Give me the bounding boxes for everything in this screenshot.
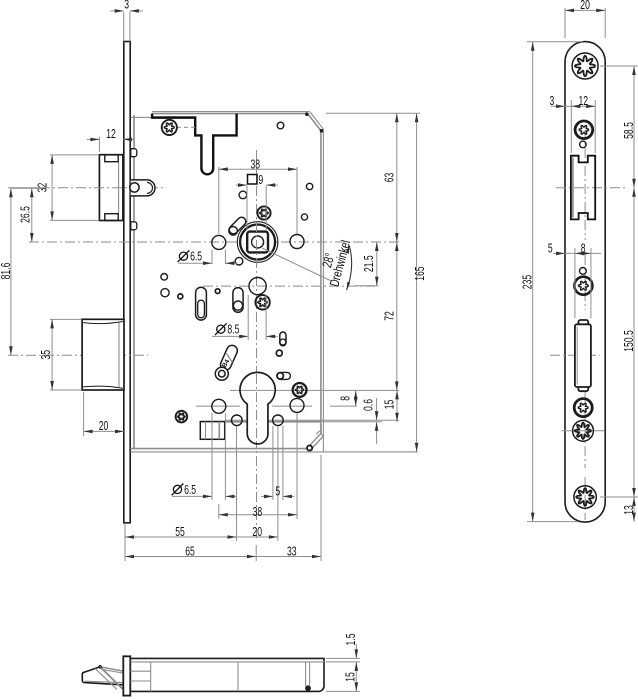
svg-text:26.5: 26.5 <box>17 206 32 223</box>
svg-text:21.5: 21.5 <box>361 255 376 272</box>
svg-text:72: 72 <box>381 311 396 321</box>
svg-text:35: 35 <box>38 350 53 360</box>
svg-text:58.5: 58.5 <box>621 122 636 139</box>
svg-text:20: 20 <box>580 0 590 12</box>
svg-text:15: 15 <box>343 672 358 682</box>
svg-text:6.5: 6.5 <box>190 249 202 264</box>
svg-text:9: 9 <box>258 172 263 187</box>
svg-text:3: 3 <box>550 93 555 108</box>
svg-text:32: 32 <box>35 183 50 193</box>
svg-text:12: 12 <box>579 93 589 108</box>
svg-text:38: 38 <box>251 156 261 171</box>
svg-text:8.5: 8.5 <box>227 322 239 337</box>
svg-text:20: 20 <box>99 418 109 433</box>
svg-text:150.5: 150.5 <box>621 330 636 352</box>
svg-text:5: 5 <box>548 240 553 255</box>
svg-text:8: 8 <box>337 396 352 401</box>
svg-text:12: 12 <box>106 126 116 141</box>
svg-text:165: 165 <box>412 266 427 280</box>
svg-text:1.5: 1.5 <box>343 634 358 646</box>
svg-text:15: 15 <box>382 400 397 410</box>
svg-text:65: 65 <box>185 544 195 559</box>
svg-text:3: 3 <box>124 0 129 12</box>
svg-text:81.6: 81.6 <box>0 263 13 280</box>
svg-text:6.5: 6.5 <box>184 482 196 497</box>
svg-text:55: 55 <box>175 524 185 539</box>
svg-text:63: 63 <box>381 173 396 183</box>
svg-text:20: 20 <box>252 524 262 539</box>
svg-text:13: 13 <box>621 505 636 515</box>
svg-text:5: 5 <box>275 483 280 498</box>
svg-text:0.6: 0.6 <box>361 399 376 411</box>
svg-text:33: 33 <box>287 544 297 559</box>
svg-text:235: 235 <box>519 275 534 289</box>
svg-text:8: 8 <box>581 240 586 255</box>
svg-text:38: 38 <box>253 504 263 519</box>
